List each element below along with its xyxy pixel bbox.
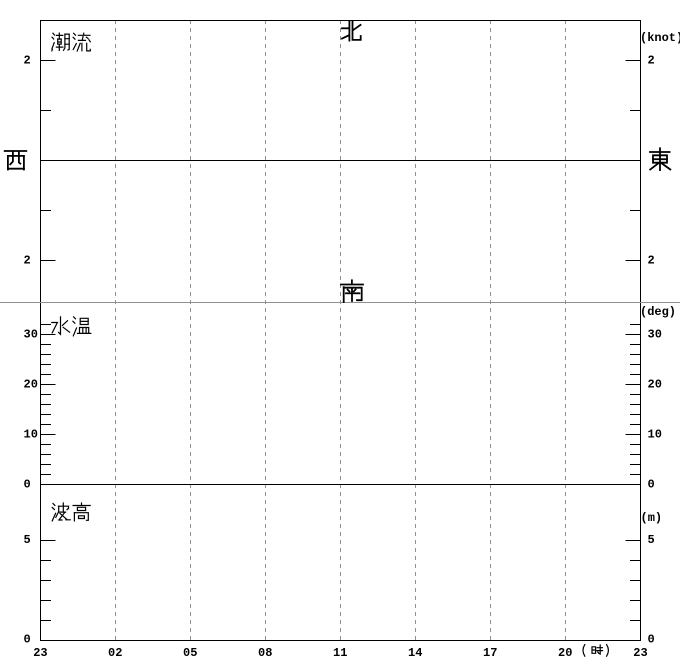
svg-text:(deg): (deg) — [640, 305, 676, 319]
svg-text:14: 14 — [408, 646, 422, 660]
svg-text:10: 10 — [24, 428, 38, 442]
svg-text:17: 17 — [483, 646, 497, 660]
svg-text:02: 02 — [108, 646, 122, 660]
svg-text:(m): (m) — [641, 511, 663, 525]
svg-text:2: 2 — [648, 254, 655, 268]
svg-text:23: 23 — [633, 646, 647, 660]
svg-text:30: 30 — [648, 328, 662, 342]
svg-text:(knot): (knot) — [640, 31, 680, 45]
svg-text:08: 08 — [258, 646, 272, 660]
svg-text:05: 05 — [183, 646, 197, 660]
svg-text:0: 0 — [24, 633, 31, 647]
svg-text:30: 30 — [24, 328, 38, 342]
svg-text:5: 5 — [648, 533, 655, 547]
svg-text:0: 0 — [648, 633, 655, 647]
svg-text:0: 0 — [24, 478, 31, 492]
svg-text:5: 5 — [24, 533, 31, 547]
svg-text:0: 0 — [648, 478, 655, 492]
svg-text:20: 20 — [24, 378, 38, 392]
svg-text:20: 20 — [558, 646, 572, 660]
svg-text:23: 23 — [33, 646, 47, 660]
svg-text:10: 10 — [648, 428, 662, 442]
svg-text:20: 20 — [648, 378, 662, 392]
svg-text:2: 2 — [648, 54, 655, 68]
svg-text:2: 2 — [24, 54, 31, 68]
svg-text:11: 11 — [333, 646, 347, 660]
svg-text:2: 2 — [24, 254, 31, 268]
